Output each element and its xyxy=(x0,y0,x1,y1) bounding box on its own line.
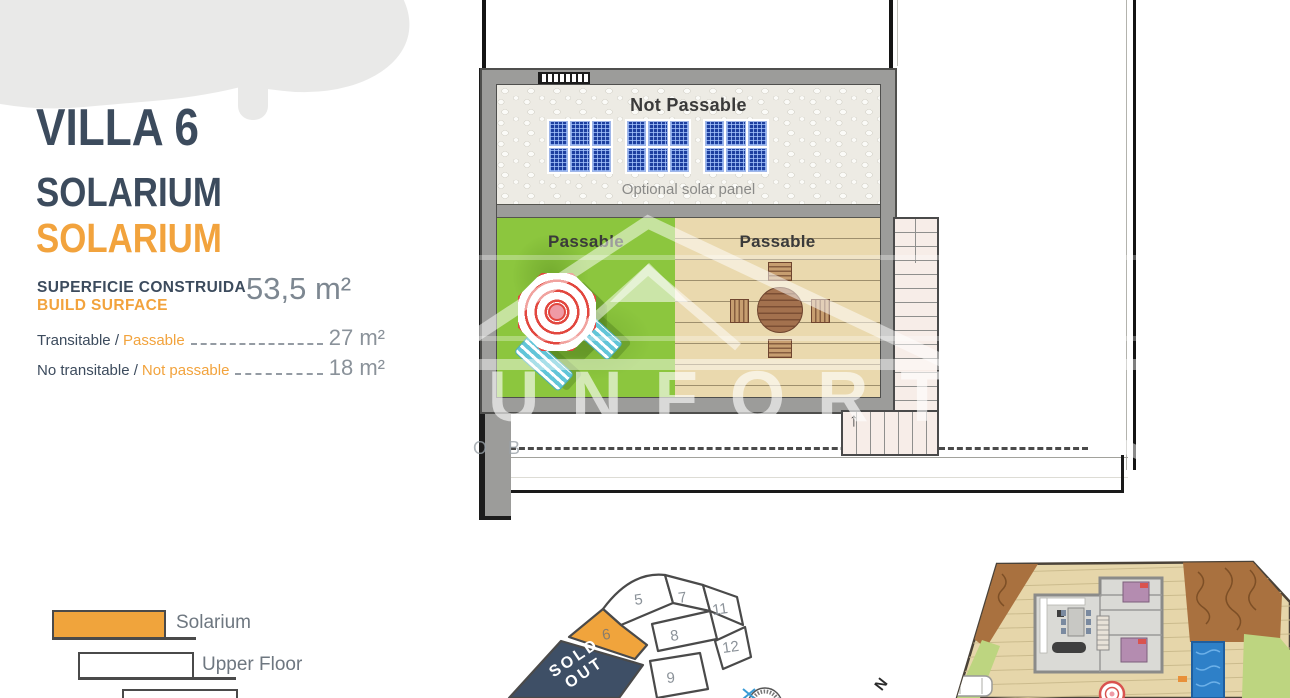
solar-panel-array xyxy=(703,119,769,174)
dividing-wall xyxy=(497,204,880,218)
surface-rows: Transitable / Passable 27 m² No transita… xyxy=(37,325,385,385)
solar-panel-array xyxy=(625,119,691,174)
plot-number: 12 xyxy=(721,638,740,657)
legend-baseline xyxy=(78,677,236,680)
terrace-edge-line xyxy=(510,490,1123,493)
dashed-terrace-line xyxy=(510,447,1088,450)
row-value: 27 m² xyxy=(329,325,385,351)
kitchen-island xyxy=(1052,642,1086,653)
pillow xyxy=(1138,639,1146,644)
row-label-en: Not passable xyxy=(142,362,230,379)
plot-8 xyxy=(652,611,717,651)
boundary-line xyxy=(897,0,898,66)
staircase xyxy=(893,217,939,413)
neighbor-structure-outline xyxy=(482,0,893,74)
passable-label: Passable xyxy=(497,232,675,252)
surface-total-value: 53,5 m² xyxy=(246,271,351,307)
legend-swatch-upper-floor xyxy=(78,652,194,679)
surface-label-es: SUPERFICIE CONSTRUIDA xyxy=(37,279,246,297)
row-label-es: No transitable / xyxy=(37,362,138,379)
row-value: 18 m² xyxy=(329,355,385,381)
chair xyxy=(768,262,792,281)
terrace-line xyxy=(510,477,1128,478)
page-subtitle-alt: SOLARIUM xyxy=(36,215,255,262)
dining-table xyxy=(1068,608,1084,636)
legend-swatch-ground-floor xyxy=(122,689,238,698)
legend-label-solarium: Solarium xyxy=(176,612,251,634)
swimming-pool xyxy=(1192,642,1224,698)
pillow xyxy=(1140,583,1148,588)
surface-row: Transitable / Passable 27 m² xyxy=(37,325,385,355)
plot-boundary-line xyxy=(1133,0,1136,470)
brochure-page: VILLA 6 SOLARIUM SOLARIUM SUPERFICIE CON… xyxy=(0,0,1290,698)
chair xyxy=(730,299,749,323)
staircase-divider xyxy=(915,219,916,263)
terrace-edge-line xyxy=(1121,455,1124,493)
kitchen-counter xyxy=(1040,598,1047,653)
compass-icon xyxy=(743,688,782,698)
brand-blob-drip xyxy=(238,60,268,120)
passable-label: Passable xyxy=(675,232,880,252)
row-label-es: Transitable / xyxy=(37,332,119,349)
stairs-direction-arrow: ↑ xyxy=(849,410,859,432)
round-table xyxy=(757,287,803,333)
terrace-line xyxy=(510,457,1128,458)
legend-swatch-solarium xyxy=(52,610,166,639)
watermark-bar xyxy=(378,424,474,439)
solar-panel-array xyxy=(547,119,613,174)
dotted-leader xyxy=(191,342,323,345)
left-wall xyxy=(482,410,511,520)
legend-label-upper-floor: Upper Floor xyxy=(202,654,302,676)
not-passable-zone: Not Passable Optional solar panel xyxy=(497,85,880,204)
page-title: VILLA 6 xyxy=(36,101,228,156)
chair xyxy=(768,339,792,358)
umbrella-pole xyxy=(548,303,566,321)
site-plan-aerial xyxy=(940,550,1290,698)
plot-9 xyxy=(650,653,708,698)
plot-boundary-line xyxy=(1126,0,1127,470)
vent-hatch xyxy=(538,72,590,84)
pool-chair xyxy=(1178,676,1187,682)
plot-number: 9 xyxy=(666,669,676,687)
surface-row: No transitable / Not passable 18 m² xyxy=(37,355,385,385)
solar-caption: Optional solar panel xyxy=(497,181,880,198)
page-subtitle: SOLARIUM xyxy=(36,169,255,216)
lawn-strip xyxy=(1242,634,1290,698)
plot-number: 11 xyxy=(711,600,729,619)
patio-umbrella xyxy=(1100,682,1124,698)
surface-label-en: BUILD SURFACE xyxy=(37,297,168,315)
chair xyxy=(811,299,830,323)
not-passable-label: Not Passable xyxy=(497,95,880,116)
legend-baseline xyxy=(52,637,196,640)
dotted-leader xyxy=(235,372,322,375)
row-label-en: Passable xyxy=(123,332,185,349)
brand-blob-edge xyxy=(0,52,14,94)
